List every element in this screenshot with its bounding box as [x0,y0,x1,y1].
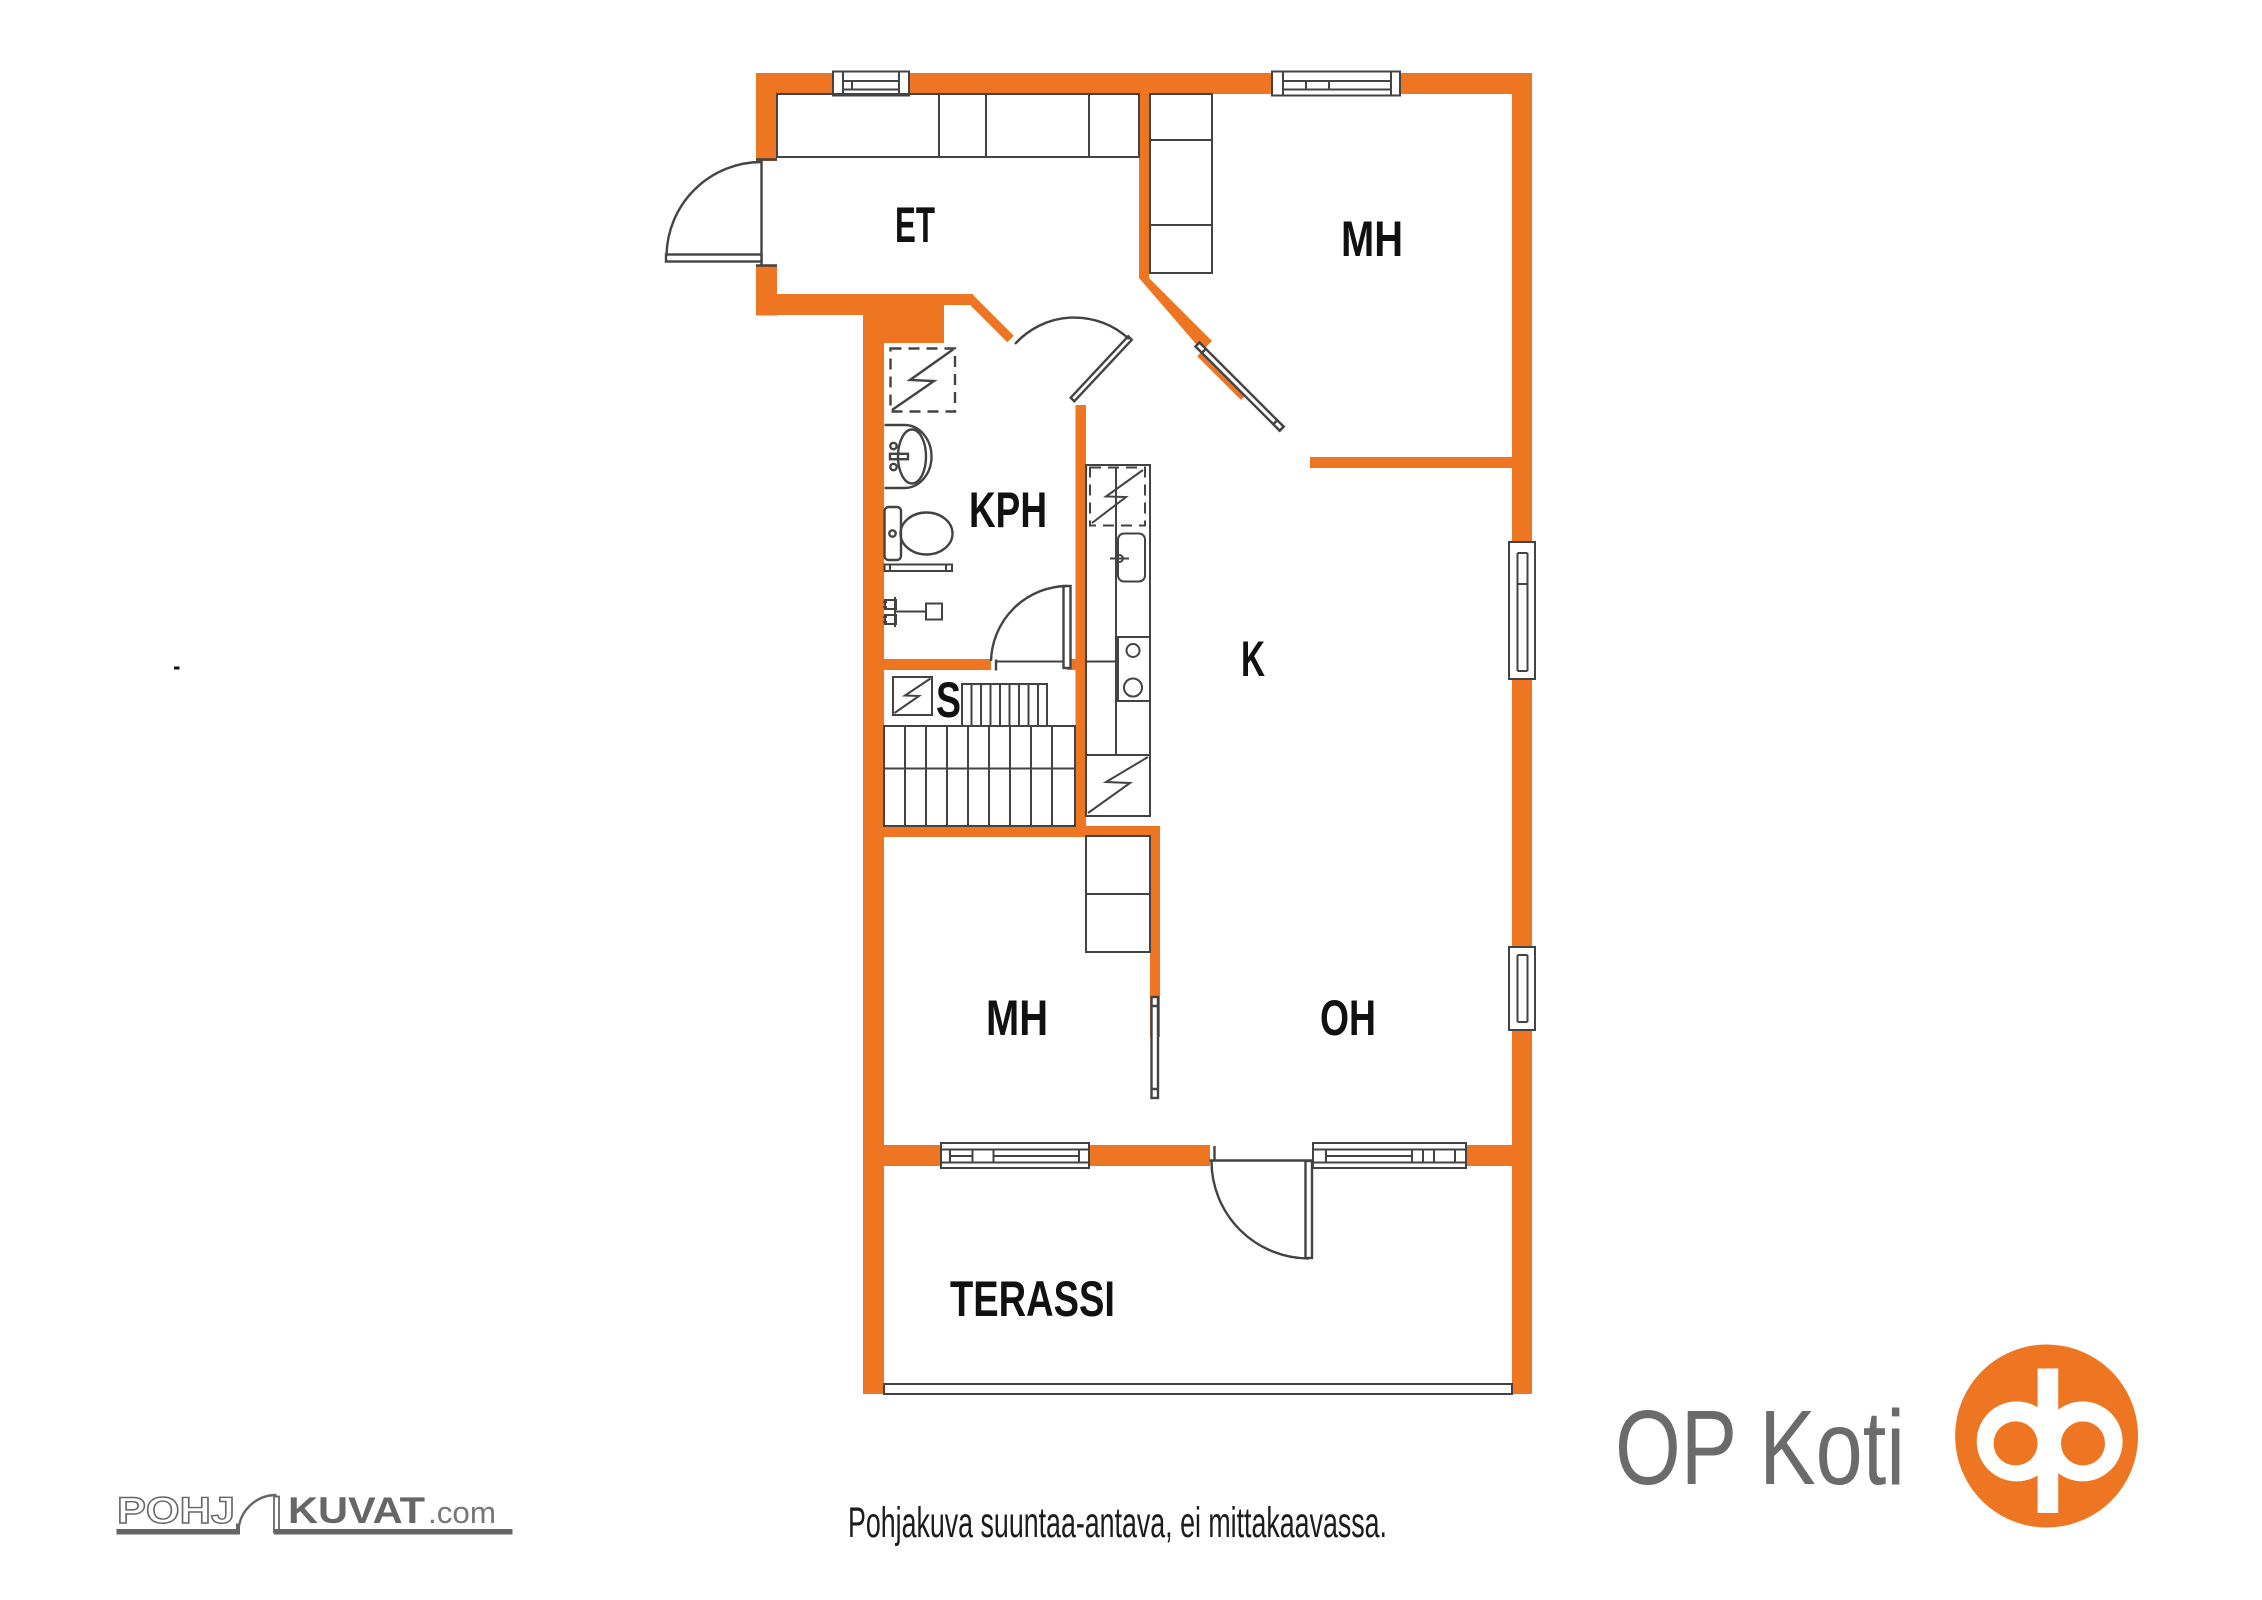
svg-text:KPH: KPH [969,482,1047,538]
svg-text:OP Koti: OP Koti [1615,1389,1905,1507]
svg-text:POHJ: POHJ [117,1490,235,1531]
svg-text:K: K [1241,631,1265,687]
svg-text:TERASSI: TERASSI [950,1271,1115,1327]
svg-text:S: S [936,672,961,728]
svg-text:MH: MH [1341,211,1403,267]
svg-text:OH: OH [1320,990,1376,1046]
svg-text:ET: ET [895,197,935,253]
svg-text:Pohjakuva suuntaa-antava, ei m: Pohjakuva suuntaa-antava, ei mittakaavas… [848,1499,1387,1547]
svg-text:MH: MH [986,990,1048,1046]
svg-text:KUVAT: KUVAT [288,1490,425,1531]
svg-text:.com: .com [428,1495,496,1530]
